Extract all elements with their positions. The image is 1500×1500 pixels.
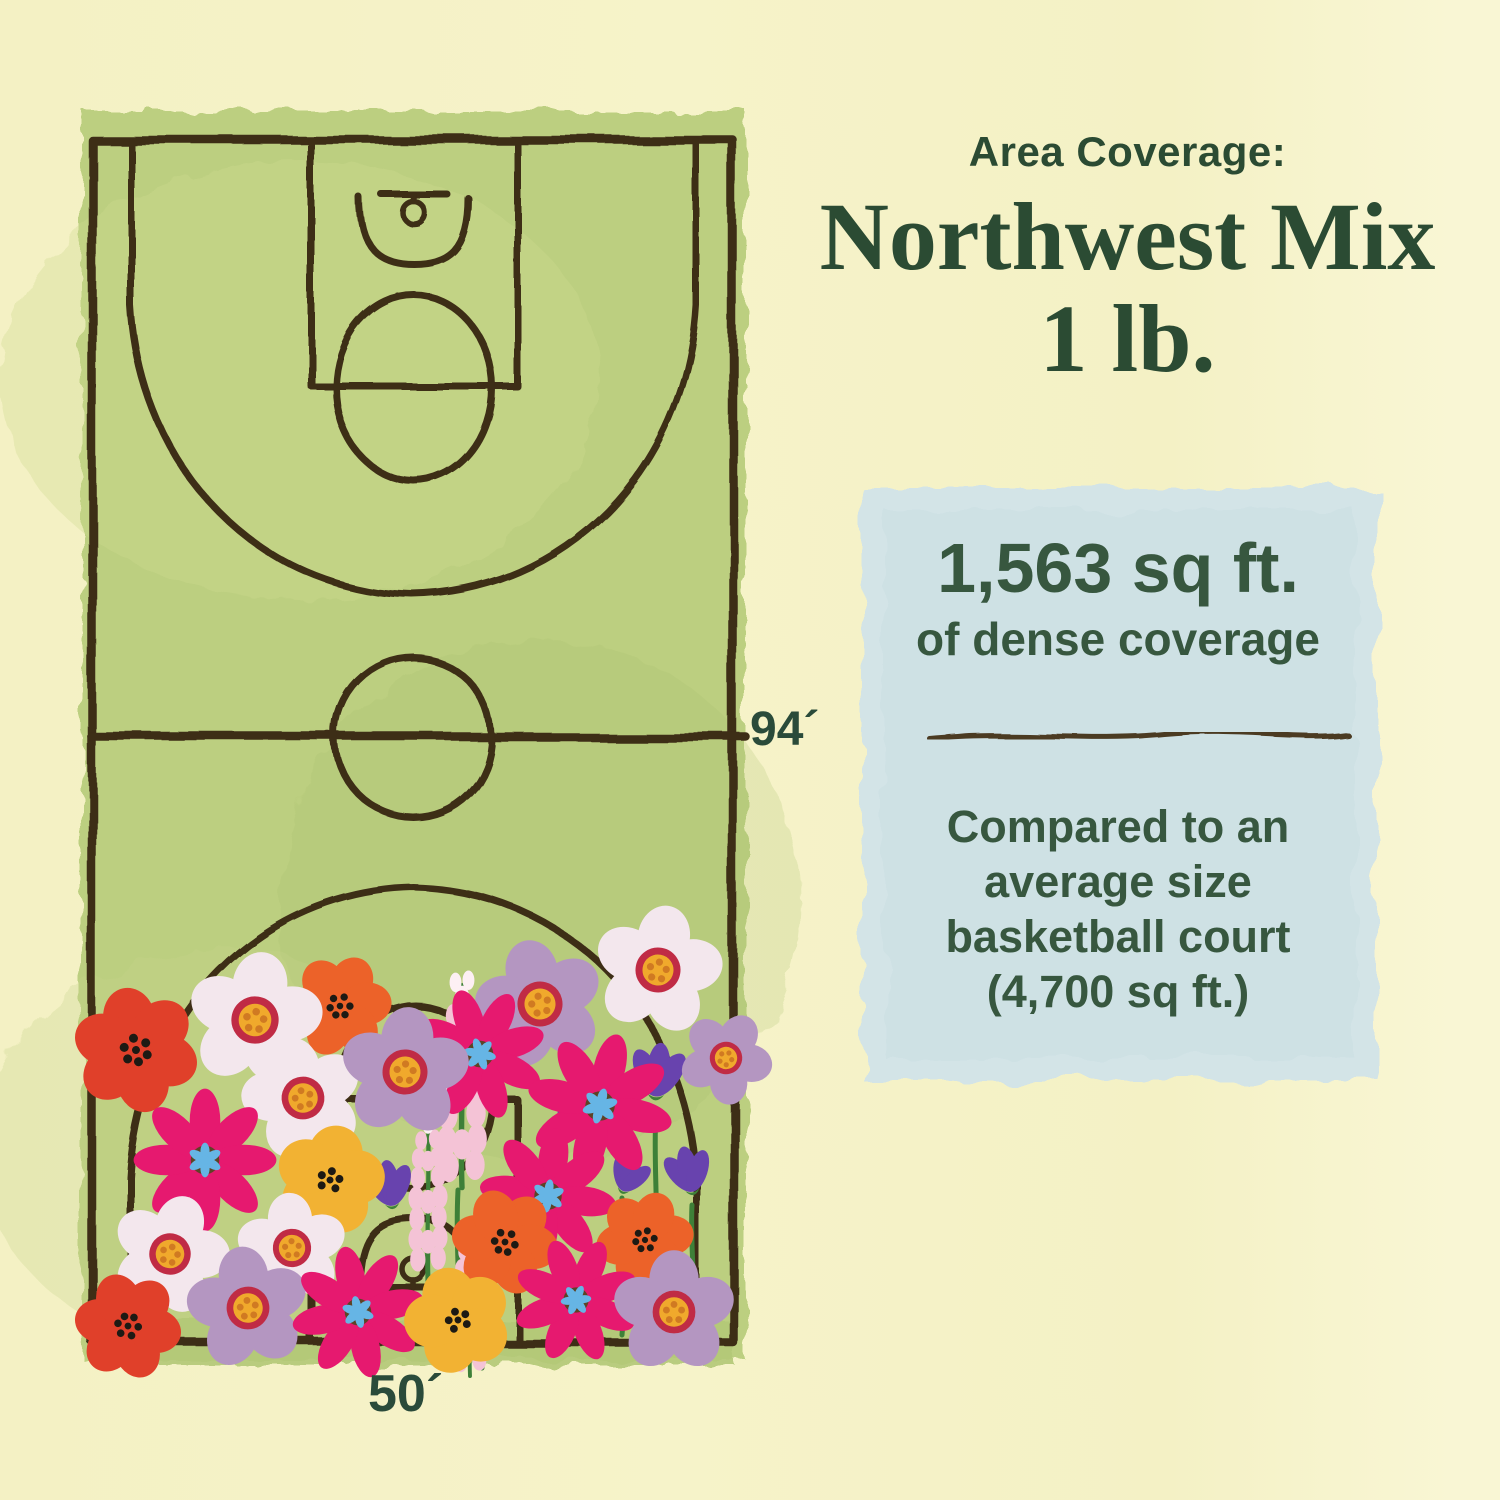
comparison-line: basketball court <box>858 910 1378 965</box>
court-width-label: 50´ <box>368 1364 443 1424</box>
coverage-card-text: 1,563 sq ft. of dense coverage <box>858 532 1378 664</box>
comparison-line: (4,700 sq ft.) <box>858 965 1378 1020</box>
court-length-label: 94´ <box>750 702 819 757</box>
coverage-area-value: 1,563 sq ft. <box>858 532 1378 606</box>
comparison-text: Compared to an average size basketball c… <box>858 800 1378 1020</box>
product-title: Northwest Mix 1 lb. <box>795 186 1460 390</box>
coverage-area-caption: of dense coverage <box>858 614 1378 665</box>
product-title-line2: 1 lb. <box>795 288 1460 390</box>
comparison-line: average size <box>858 855 1378 910</box>
comparison-line: Compared to an <box>858 800 1378 855</box>
header: Area Coverage: Northwest Mix 1 lb. <box>795 128 1460 390</box>
product-title-line1: Northwest Mix <box>795 186 1460 288</box>
area-coverage-infographic: 94´ 50´ Area Coverage: Northwest Mix 1 l… <box>0 0 1500 1500</box>
magenta-cosmos <box>134 1089 277 1232</box>
area-coverage-eyebrow: Area Coverage: <box>795 128 1460 176</box>
